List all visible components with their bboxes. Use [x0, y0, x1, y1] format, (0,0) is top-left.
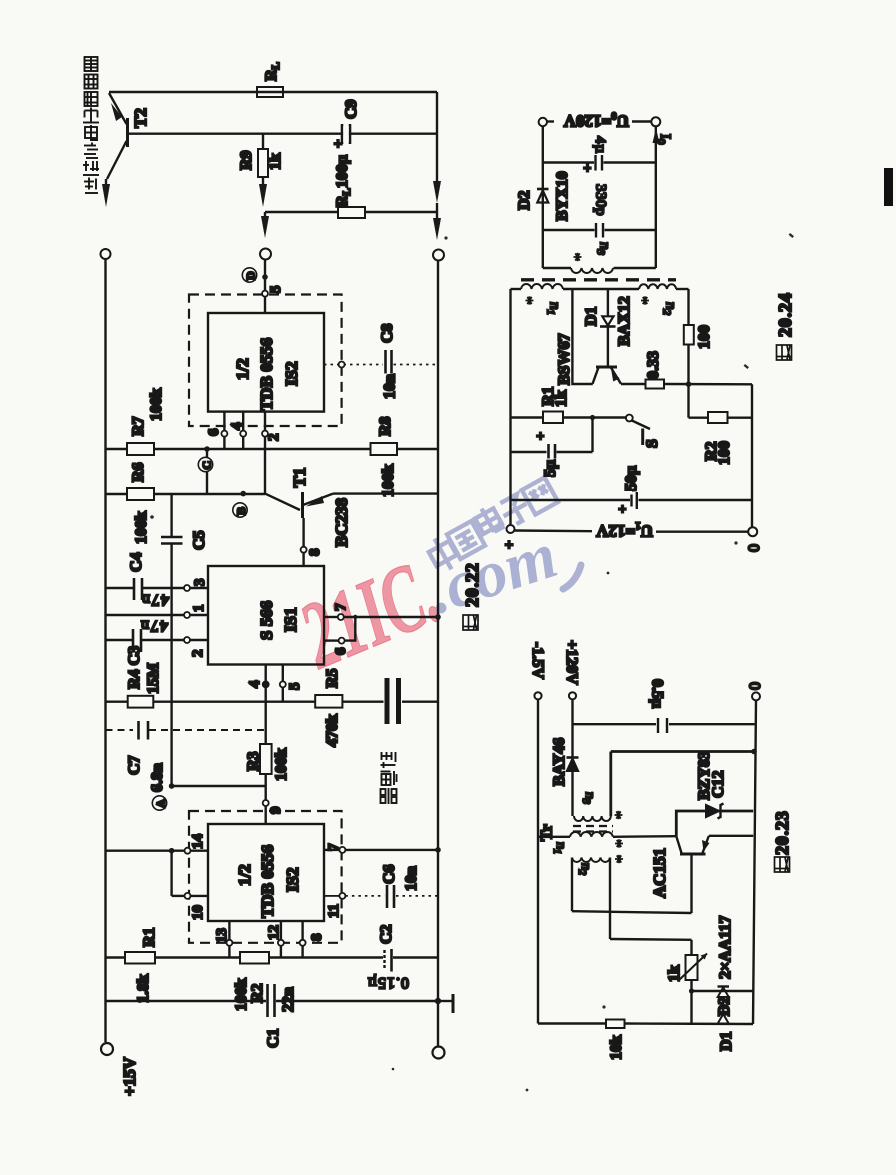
svg-text:6: 6 [333, 647, 349, 655]
svg-text:100k: 100k [133, 511, 150, 544]
svg-text:BAX12: BAX12 [616, 296, 633, 346]
svg-text:0.5µ: 0.5µ [649, 679, 666, 708]
svg-text:100k: 100k [233, 978, 250, 1011]
svg-text:C5: C5 [191, 530, 208, 550]
svg-text:IS2: IS2 [282, 361, 301, 386]
svg-text:BSW67: BSW67 [556, 333, 573, 385]
svg-text:C7: C7 [126, 755, 143, 775]
svg-text:4: 4 [229, 422, 245, 430]
svg-text:5µ: 5µ [542, 460, 559, 477]
svg-text:20.24: 20.24 [775, 293, 795, 338]
svg-text:C6: C6 [381, 864, 398, 884]
svg-text:B: B [234, 507, 248, 515]
svg-text:RL100µ: RL100µ [334, 155, 353, 207]
svg-text:22n: 22n [280, 987, 297, 1012]
svg-text:100k: 100k [273, 748, 290, 781]
svg-text:R7: R7 [130, 416, 147, 436]
svg-text:T1: T1 [290, 468, 309, 488]
svg-text:BAY46: BAY46 [551, 738, 568, 786]
svg-text:0.33: 0.33 [645, 351, 662, 379]
svg-text:5: 5 [287, 683, 303, 691]
svg-text:100k: 100k [148, 388, 165, 421]
svg-text:+: + [502, 540, 518, 549]
svg-text:R4 C3: R4 C3 [126, 646, 143, 689]
svg-text:U0=120V: U0=120V [563, 110, 629, 131]
svg-text:-1.5V: -1.5V [529, 642, 546, 679]
svg-text:D1: D1 [583, 306, 600, 326]
svg-text:15M: 15M [145, 663, 162, 694]
svg-text:0.15µ: 0.15µ [367, 974, 409, 991]
svg-text:T2: T2 [131, 108, 150, 128]
svg-text:20.23: 20.23 [772, 811, 792, 856]
svg-text:330p: 330p [593, 184, 609, 216]
svg-text:C9: C9 [343, 99, 360, 119]
svg-text:4µ: 4µ [592, 136, 608, 154]
svg-text:C12: C12 [710, 770, 727, 798]
svg-text:11: 11 [326, 904, 342, 918]
svg-text:6: 6 [206, 428, 222, 436]
svg-text:S: S [644, 439, 661, 448]
svg-text:1k: 1k [267, 153, 284, 170]
svg-text:D2: D2 [516, 190, 533, 210]
svg-text:4: 4 [247, 680, 263, 688]
svg-text:+120V: +120V [563, 640, 580, 685]
svg-text:13: 13 [214, 928, 230, 943]
svg-text:2: 2 [190, 650, 206, 658]
svg-text:U1=12V: U1=12V [596, 520, 653, 541]
svg-text:470k: 470k [324, 714, 341, 747]
svg-text:R8: R8 [377, 416, 394, 436]
svg-text:+: + [581, 164, 596, 172]
svg-text:TDB 0556: TDB 0556 [257, 338, 276, 411]
svg-text:IS2: IS2 [283, 867, 302, 892]
svg-text:C1: C1 [265, 1028, 282, 1048]
svg-text:+15V: +15V [120, 1056, 139, 1096]
svg-text:1k: 1k [553, 390, 570, 407]
svg-text:47n: 47n [140, 617, 169, 634]
svg-text:100: 100 [716, 441, 733, 465]
svg-text:D1: D1 [718, 1031, 735, 1051]
svg-text:BYX10: BYX10 [554, 171, 571, 221]
svg-text:1k: 1k [666, 965, 683, 982]
svg-text:5: 5 [268, 286, 284, 294]
svg-text:14: 14 [190, 834, 206, 850]
svg-text:1/2: 1/2 [233, 358, 252, 380]
svg-text:3: 3 [192, 579, 208, 587]
svg-text:2: 2 [266, 434, 282, 442]
svg-text:1.8k: 1.8k [135, 974, 152, 1003]
svg-text:10n: 10n [382, 374, 399, 399]
svg-text:C2: C2 [378, 924, 395, 944]
svg-text:47n: 47n [141, 591, 170, 608]
svg-text:100: 100 [696, 325, 713, 349]
svg-text:C: C [200, 461, 214, 470]
svg-text:BC238: BC238 [332, 498, 351, 547]
svg-text:A: A [154, 799, 168, 808]
svg-text:100k: 100k [380, 464, 397, 497]
svg-text:20.22: 20.22 [462, 563, 482, 608]
svg-text:8: 8 [307, 549, 323, 557]
svg-text:+: + [534, 432, 549, 440]
svg-text:10k: 10k [608, 1035, 625, 1060]
svg-text:R5: R5 [324, 668, 341, 688]
svg-text:7: 7 [326, 843, 342, 851]
svg-text:2×AA117: 2×AA117 [717, 916, 734, 979]
svg-text:+: + [331, 139, 347, 148]
svg-text:TDB 0556: TDB 0556 [258, 845, 277, 918]
svg-text:12: 12 [266, 925, 282, 940]
svg-text:0: 0 [746, 544, 763, 552]
svg-text:R3: R3 [245, 751, 262, 771]
svg-text:0: 0 [747, 682, 764, 690]
svg-text:D: D [244, 271, 258, 280]
svg-text:IS1: IS1 [281, 607, 300, 632]
svg-text:C4: C4 [128, 552, 145, 572]
svg-text:S 566: S 566 [257, 601, 276, 640]
svg-text:1/2: 1/2 [235, 864, 254, 886]
svg-text:R1: R1 [141, 927, 158, 947]
svg-text:50µ: 50µ [623, 466, 640, 491]
svg-text:R6: R6 [130, 462, 147, 482]
svg-text:7: 7 [333, 603, 349, 611]
svg-text:C8: C8 [379, 323, 396, 343]
svg-text:Tr: Tr [539, 824, 556, 841]
svg-text:10n: 10n [403, 866, 420, 891]
svg-text:AC151: AC151 [650, 848, 669, 898]
svg-text:+: + [616, 505, 631, 513]
svg-text:8: 8 [309, 934, 325, 942]
svg-text:1: 1 [191, 605, 207, 613]
svg-text:R9: R9 [238, 150, 255, 170]
svg-text:6.8n: 6.8n [149, 763, 166, 792]
svg-text:10: 10 [190, 905, 206, 920]
